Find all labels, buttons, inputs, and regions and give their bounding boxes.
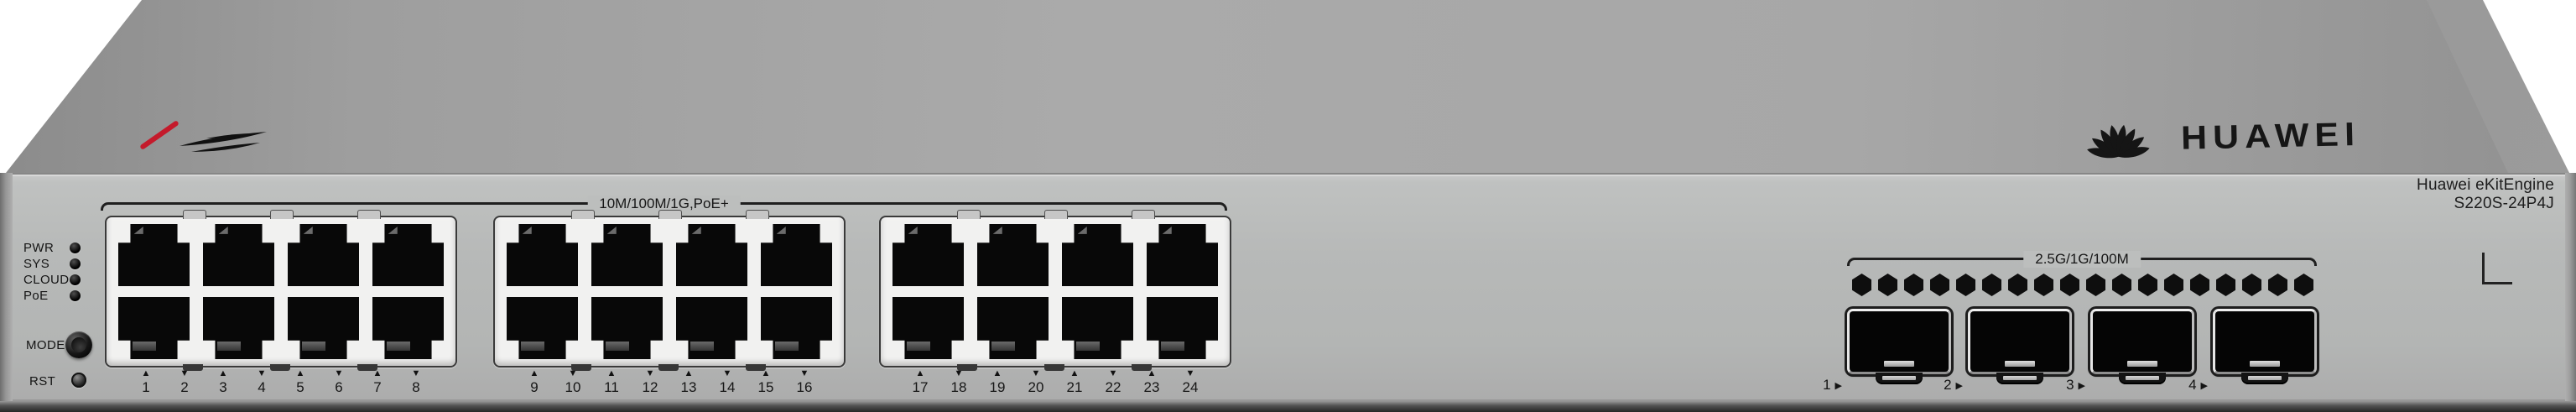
mode-button-label: MODE bbox=[26, 338, 65, 352]
rj45-port[interactable] bbox=[591, 224, 663, 286]
down-triangle-icon: ▼ bbox=[335, 369, 344, 378]
port-number: 7 bbox=[373, 380, 381, 395]
port-number: 10 bbox=[565, 380, 581, 395]
huawei-flower-icon bbox=[2070, 117, 2168, 159]
jack-grid bbox=[507, 224, 832, 359]
sfp-port-label: 1▶ bbox=[1807, 377, 1842, 395]
red-slash-mark bbox=[139, 120, 180, 150]
led-label-sys: SYS bbox=[23, 257, 49, 271]
switch-product-photo: HUAWEI PWR SYS CLOUD PoE MODE RST 10M/10… bbox=[0, 0, 2576, 412]
product-model: S220S-24P4J bbox=[2417, 195, 2554, 213]
right-triangle-icon: ▶ bbox=[2201, 381, 2208, 391]
port-number: 9 bbox=[530, 380, 538, 395]
vent-hole bbox=[1852, 274, 1871, 296]
rj45-port[interactable] bbox=[118, 297, 190, 359]
up-triangle-icon: ▲ bbox=[684, 369, 694, 378]
vent-hole bbox=[2138, 274, 2157, 296]
port-number: 12 bbox=[643, 380, 658, 395]
port-number: 23 bbox=[1144, 380, 1160, 395]
port-number-strip: ▲17 ▼18 ▲19 ▼20 ▲21 ▼22 ▲23 ▼24 bbox=[901, 369, 1210, 398]
sfp-port-number: 1 bbox=[1823, 377, 1830, 393]
model-text-block: Huawei eKitEngine S220S-24P4J bbox=[2417, 176, 2554, 213]
sfp-speed-bracket: 2.5G/1G/100M bbox=[1847, 258, 2317, 266]
vent-hole bbox=[1956, 274, 1975, 296]
sfp-port-label: 4▶ bbox=[2173, 377, 2208, 395]
sys-led bbox=[70, 258, 81, 269]
sfp-port[interactable] bbox=[2090, 309, 2194, 374]
port-number-strip: ▲1 ▼2 ▲3 ▼4 ▲5 ▼6 ▲7 ▼8 bbox=[127, 369, 435, 398]
up-triangle-icon: ▲ bbox=[142, 369, 151, 378]
vent-hole-row bbox=[1852, 274, 2313, 296]
up-triangle-icon: ▲ bbox=[916, 369, 925, 378]
huawei-brand-lockup: HUAWEI bbox=[2070, 112, 2361, 159]
chassis-top-face: HUAWEI bbox=[0, 0, 2576, 173]
rj45-port[interactable] bbox=[203, 297, 274, 359]
rj45-port-block bbox=[105, 216, 457, 368]
port-number: 15 bbox=[758, 380, 774, 395]
jack-grid bbox=[892, 224, 1218, 359]
reset-button[interactable] bbox=[71, 373, 86, 388]
up-triangle-icon: ▲ bbox=[219, 369, 228, 378]
sfp-latch[interactable] bbox=[1876, 373, 1923, 384]
led-label-cloud: CLOUD bbox=[23, 273, 70, 287]
bezel-tab bbox=[357, 210, 381, 219]
sfp-port-number: 4 bbox=[2188, 377, 2196, 393]
bezel-tab bbox=[658, 210, 682, 219]
right-triangle-icon: ▶ bbox=[1835, 381, 1842, 391]
up-triangle-icon: ▲ bbox=[762, 369, 771, 378]
reset-button-label: RST bbox=[29, 374, 55, 389]
huawei-wordmark: HUAWEI bbox=[2181, 117, 2361, 155]
down-triangle-icon: ▼ bbox=[1109, 369, 1118, 378]
port-number: 5 bbox=[296, 380, 304, 395]
mode-button[interactable] bbox=[65, 331, 92, 358]
port-number: 1 bbox=[142, 380, 149, 395]
port-number: 21 bbox=[1067, 380, 1083, 395]
rj45-port[interactable] bbox=[372, 297, 444, 359]
rj45-port-group-1: ▲1 ▼2 ▲3 ▼4 ▲5 ▼6 ▲7 ▼8 bbox=[105, 216, 457, 398]
sfp-latch[interactable] bbox=[1996, 373, 2043, 384]
right-triangle-icon: ▶ bbox=[2079, 381, 2085, 391]
sfp-port-number: 2 bbox=[1944, 377, 1951, 393]
port-number: 2 bbox=[180, 380, 188, 395]
rj45-port[interactable] bbox=[507, 297, 578, 359]
cloud-led bbox=[70, 274, 81, 285]
up-triangle-icon: ▲ bbox=[373, 369, 382, 378]
rj45-port-group-3: ▲17 ▼18 ▲19 ▼20 ▲21 ▼22 ▲23 ▼24 bbox=[879, 216, 1231, 398]
rj45-port[interactable] bbox=[591, 297, 663, 359]
vent-hole bbox=[2190, 274, 2209, 296]
down-triangle-icon: ▼ bbox=[1186, 369, 1195, 378]
port-number: 16 bbox=[797, 380, 813, 395]
chassis-left-edge bbox=[0, 173, 13, 401]
vent-hole bbox=[2164, 274, 2183, 296]
port-number-strip: ▲9 ▼10 ▲11 ▼12 ▲13 ▼14 ▲15 ▼16 bbox=[515, 369, 824, 398]
rj45-port[interactable] bbox=[1147, 297, 1218, 359]
sfp-port-number: 3 bbox=[2066, 377, 2074, 393]
rj45-port[interactable] bbox=[1062, 297, 1133, 359]
vent-hole bbox=[2060, 274, 2079, 296]
vent-hole bbox=[2268, 274, 2287, 296]
rj45-port[interactable] bbox=[118, 224, 190, 286]
bezel-tab bbox=[957, 210, 981, 219]
port-number: 4 bbox=[258, 380, 265, 395]
pwr-led bbox=[70, 243, 81, 253]
up-triangle-icon: ▲ bbox=[607, 369, 617, 378]
down-triangle-icon: ▼ bbox=[723, 369, 732, 378]
port-number: 20 bbox=[1028, 380, 1044, 395]
sfp-port[interactable] bbox=[2213, 309, 2317, 374]
bezel-tab bbox=[1044, 210, 1068, 219]
down-triangle-icon: ▼ bbox=[1032, 369, 1041, 378]
rj45-port[interactable] bbox=[892, 224, 964, 286]
product-series: Huawei eKitEngine bbox=[2417, 176, 2554, 195]
sfp-speed-label: 2.5G/1G/100M bbox=[2023, 251, 2141, 268]
chassis-right-edge bbox=[2565, 173, 2576, 401]
down-triangle-icon: ▼ bbox=[569, 369, 578, 378]
down-triangle-icon: ▼ bbox=[800, 369, 809, 378]
port-number: 17 bbox=[913, 380, 929, 395]
bezel-tab bbox=[270, 210, 294, 219]
sfp-port-label: 3▶ bbox=[2050, 377, 2085, 395]
vent-hole bbox=[2242, 274, 2261, 296]
port-number: 6 bbox=[335, 380, 342, 395]
jack-grid bbox=[118, 224, 444, 359]
sfp-latch[interactable] bbox=[2119, 373, 2166, 384]
vent-hole bbox=[1930, 274, 1949, 296]
chassis-bottom-edge bbox=[0, 401, 2576, 412]
vent-hole bbox=[1904, 274, 1923, 296]
up-triangle-icon: ▲ bbox=[1147, 369, 1157, 378]
rj45-port[interactable] bbox=[372, 224, 444, 286]
port-number: 22 bbox=[1106, 380, 1121, 395]
rj45-port[interactable] bbox=[507, 224, 578, 286]
rj45-port[interactable] bbox=[1147, 224, 1218, 286]
bezel-tab bbox=[1132, 210, 1155, 219]
sfp-latch[interactable] bbox=[2241, 373, 2288, 384]
rj45-port-block bbox=[879, 216, 1231, 368]
port-number: 14 bbox=[720, 380, 736, 395]
port-number: 13 bbox=[681, 380, 697, 395]
rj45-port[interactable] bbox=[977, 224, 1049, 286]
vent-hole bbox=[2294, 274, 2313, 296]
up-triangle-icon: ▲ bbox=[530, 369, 539, 378]
corner-l-mark bbox=[2482, 253, 2512, 284]
sfp-port[interactable] bbox=[1968, 309, 2072, 374]
port-number: 18 bbox=[951, 380, 967, 395]
bezel-tab bbox=[746, 210, 769, 219]
rj45-port[interactable] bbox=[761, 224, 832, 286]
down-triangle-icon: ▼ bbox=[955, 369, 964, 378]
rj45-port[interactable] bbox=[977, 297, 1049, 359]
led-label-poe: PoE bbox=[23, 289, 49, 303]
vent-hole bbox=[2216, 274, 2235, 296]
vent-hole bbox=[1982, 274, 2001, 296]
port-number: 11 bbox=[604, 380, 619, 395]
rj45-port[interactable] bbox=[892, 297, 964, 359]
rj45-port-group-2: ▲9 ▼10 ▲11 ▼12 ▲13 ▼14 ▲15 ▼16 bbox=[493, 216, 846, 398]
down-triangle-icon: ▼ bbox=[412, 369, 421, 378]
led-label-pwr: PWR bbox=[23, 241, 54, 255]
vent-hole bbox=[1878, 274, 1897, 296]
bezel-tab bbox=[183, 210, 206, 219]
up-triangle-icon: ▲ bbox=[993, 369, 1002, 378]
down-triangle-icon: ▼ bbox=[646, 369, 655, 378]
rj45-port[interactable] bbox=[761, 297, 832, 359]
up-triangle-icon: ▲ bbox=[296, 369, 305, 378]
rj45-port[interactable] bbox=[1062, 224, 1133, 286]
vent-hole bbox=[2008, 274, 2027, 296]
vent-hole bbox=[2112, 274, 2131, 296]
rj45-port[interactable] bbox=[676, 297, 747, 359]
rj45-port[interactable] bbox=[288, 297, 359, 359]
sfp-port[interactable] bbox=[1847, 309, 1951, 374]
rj45-port-block bbox=[493, 216, 846, 368]
poe-led bbox=[70, 290, 81, 301]
down-triangle-icon: ▼ bbox=[180, 369, 190, 378]
vent-hole bbox=[2086, 274, 2105, 296]
port-number: 8 bbox=[412, 380, 419, 395]
right-triangle-icon: ▶ bbox=[1956, 381, 1963, 391]
rj45-port[interactable] bbox=[203, 224, 274, 286]
rj45-port[interactable] bbox=[288, 224, 359, 286]
vent-hole bbox=[2034, 274, 2053, 296]
sfp-port-label: 2▶ bbox=[1928, 377, 1963, 395]
port-number: 3 bbox=[219, 380, 226, 395]
port-number: 24 bbox=[1183, 380, 1199, 395]
up-triangle-icon: ▲ bbox=[1070, 369, 1080, 378]
down-triangle-icon: ▼ bbox=[258, 369, 267, 378]
bezel-tab bbox=[571, 210, 595, 219]
rj45-port[interactable] bbox=[676, 224, 747, 286]
port-number: 19 bbox=[990, 380, 1006, 395]
perspective-logo-icon bbox=[178, 126, 270, 159]
